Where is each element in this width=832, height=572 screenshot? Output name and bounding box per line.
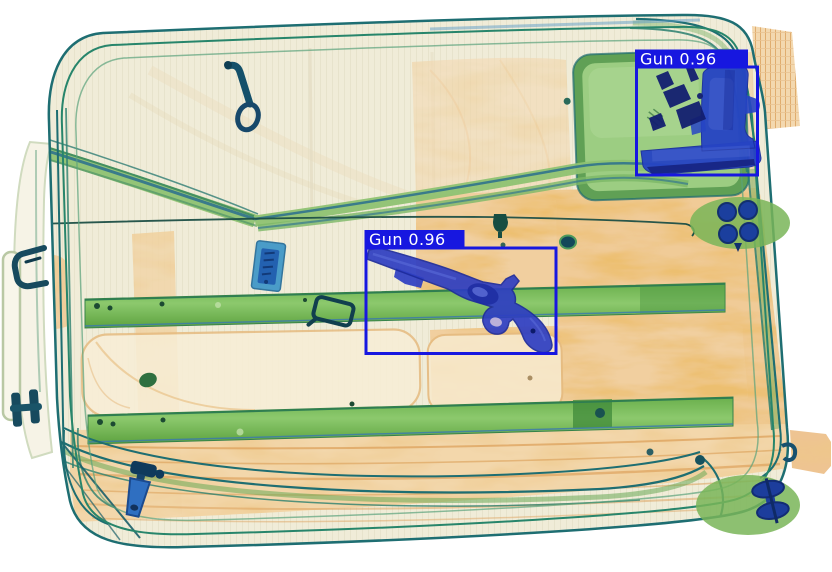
- detection-label-text: Gun 0.96: [640, 50, 717, 69]
- luggage-tag: [251, 240, 286, 291]
- xray-scan-viewport: Gun 0.96 Gun 0.96: [0, 0, 832, 572]
- detection-label-text: Gun 0.96: [369, 230, 446, 249]
- snap-button: [560, 236, 576, 249]
- xray-scan-image: Gun 0.96 Gun 0.96: [0, 0, 832, 572]
